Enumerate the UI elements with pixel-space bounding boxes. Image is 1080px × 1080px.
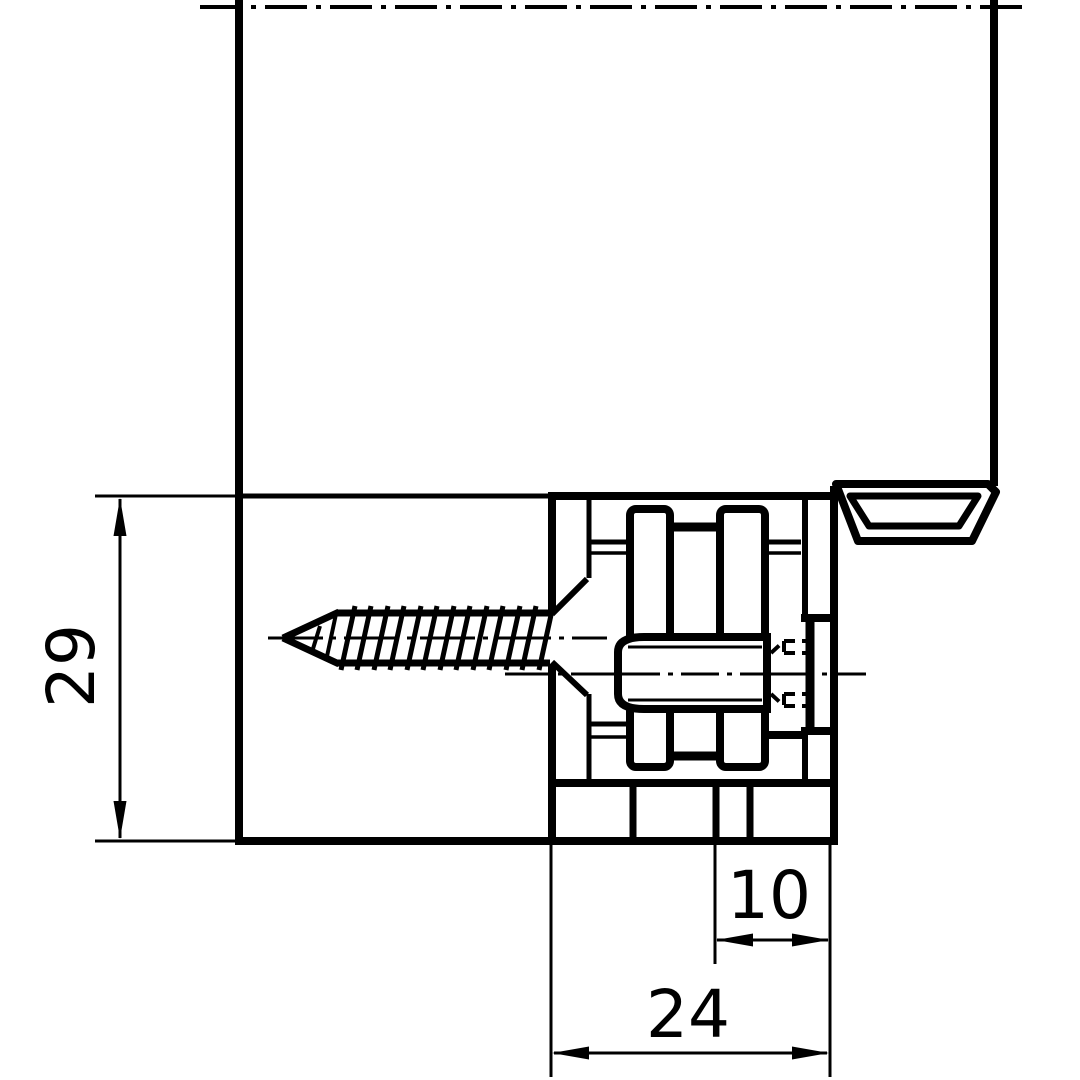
arrowhead-up: [114, 498, 127, 536]
arrowhead-right: [792, 1047, 829, 1060]
dimension-29: 29: [33, 496, 239, 841]
centerlines: [200, 7, 1025, 674]
countersink-cone-bottom: [552, 662, 587, 695]
dimension-label: 29: [33, 624, 110, 708]
technical-drawing: 29 10 24: [0, 0, 1080, 1080]
barrel-nut: [618, 637, 770, 709]
arrowhead-left: [552, 1047, 589, 1060]
drawing-canvas: 29 10 24: [0, 0, 1080, 1080]
glazing-gasket: [836, 484, 996, 541]
arrowhead-left: [716, 934, 753, 947]
gasket-inner-profile: [850, 496, 978, 526]
frame-profile: [235, 0, 994, 845]
fixing-screw: [283, 606, 553, 670]
dimension-10: 10: [715, 845, 830, 1077]
countersink-cone-top: [552, 579, 587, 614]
dimension-label: 10: [727, 857, 811, 934]
arrowhead-right: [792, 934, 829, 947]
arrowhead-down: [114, 801, 127, 839]
dimension-label: 24: [646, 976, 730, 1053]
